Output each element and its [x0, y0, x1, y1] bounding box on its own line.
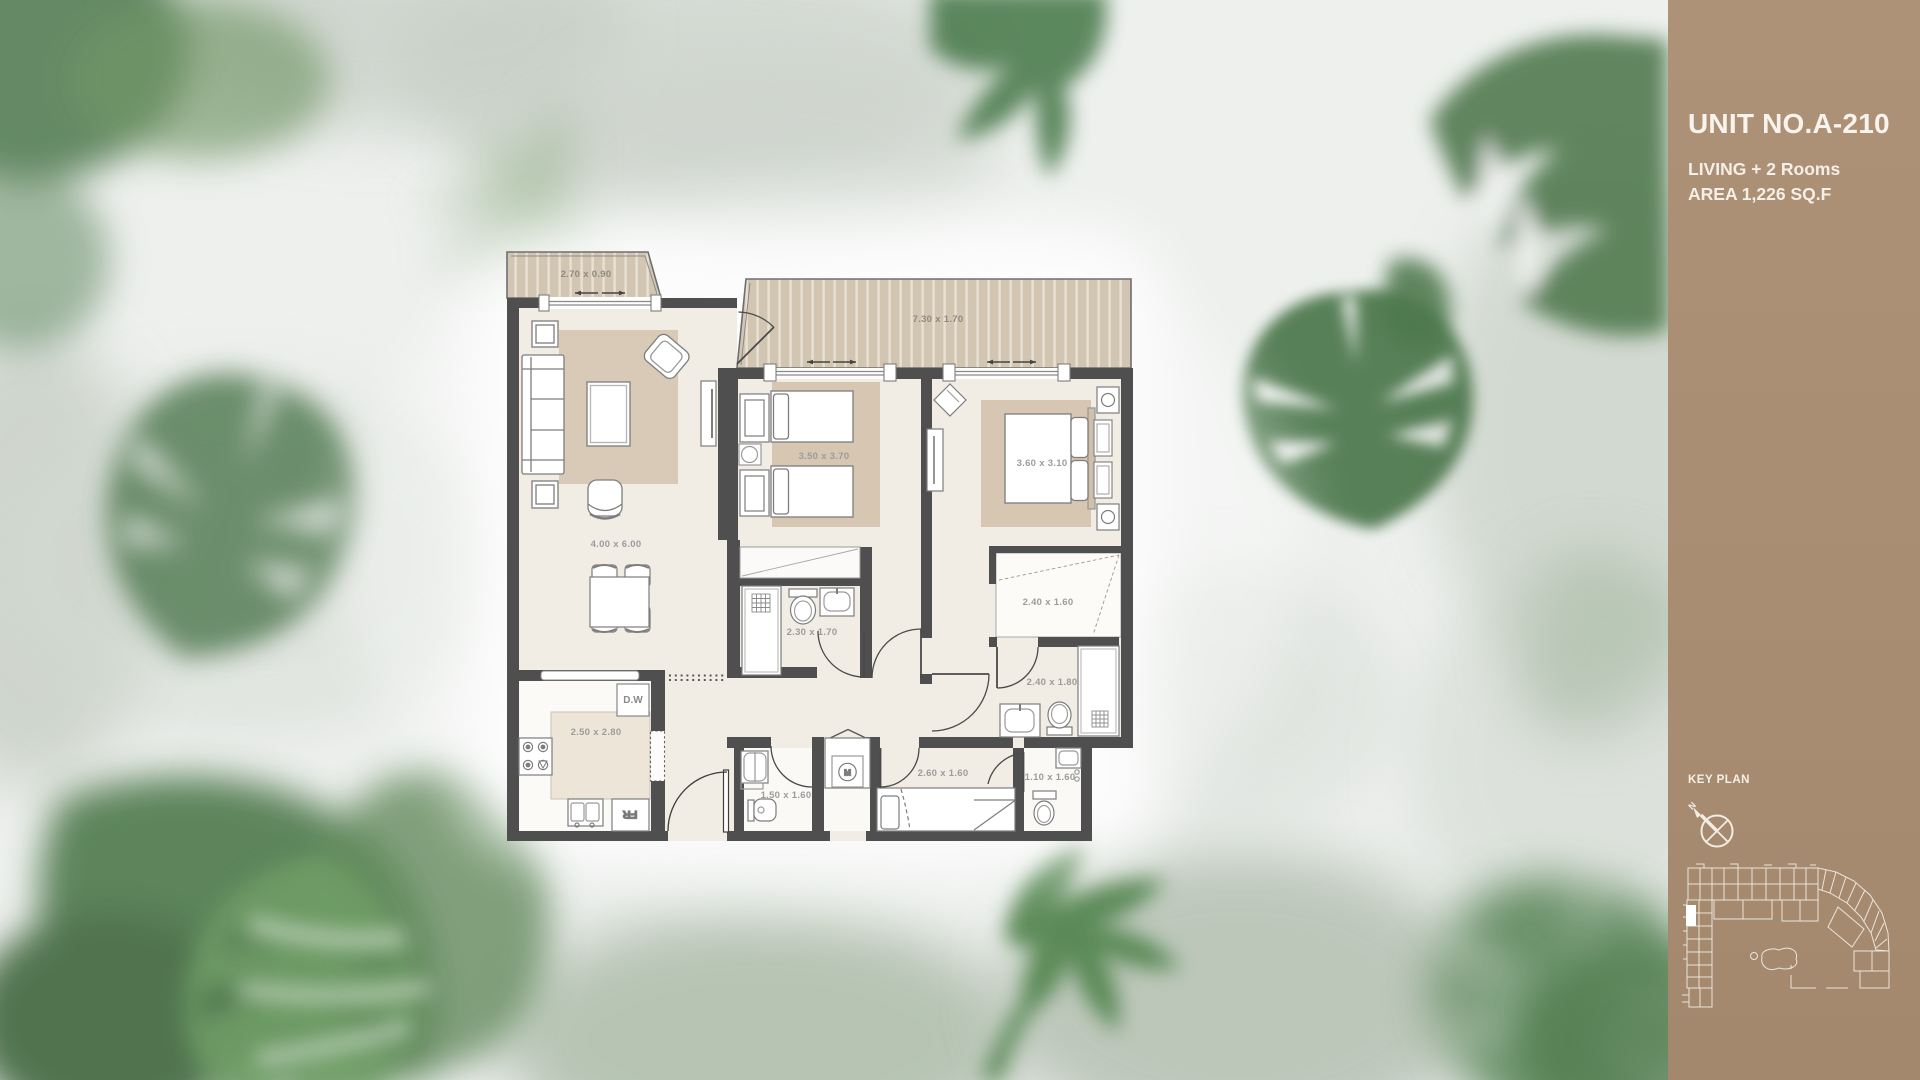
svg-text:2.30 x 1.70: 2.30 x 1.70 [787, 627, 838, 638]
svg-text:D.W: D.W [623, 695, 643, 706]
svg-text:1.50 x 1.60: 1.50 x 1.60 [761, 790, 812, 801]
svg-text:2.50 x 2.80: 2.50 x 2.80 [571, 727, 622, 738]
svg-text:1.10 x 1.60: 1.10 x 1.60 [1025, 772, 1076, 783]
svg-text:FR: FR [623, 808, 638, 820]
svg-text:M: M [844, 768, 851, 778]
svg-text:2.70 x 0.90: 2.70 x 0.90 [561, 269, 612, 280]
svg-text:N: N [1686, 800, 1698, 812]
svg-text:2.40 x 1.80: 2.40 x 1.80 [1027, 677, 1078, 688]
svg-text:3.60 x 3.10: 3.60 x 3.10 [1017, 458, 1068, 469]
svg-text:3.50 x 3.70: 3.50 x 3.70 [799, 451, 850, 462]
svg-text:2.40 x 1.60: 2.40 x 1.60 [1023, 597, 1074, 608]
svg-text:2.60 x 1.60: 2.60 x 1.60 [918, 768, 969, 779]
svg-text:7.30 x 1.70: 7.30 x 1.70 [913, 314, 964, 325]
svg-text:4.00 x 6.00: 4.00 x 6.00 [591, 539, 642, 550]
